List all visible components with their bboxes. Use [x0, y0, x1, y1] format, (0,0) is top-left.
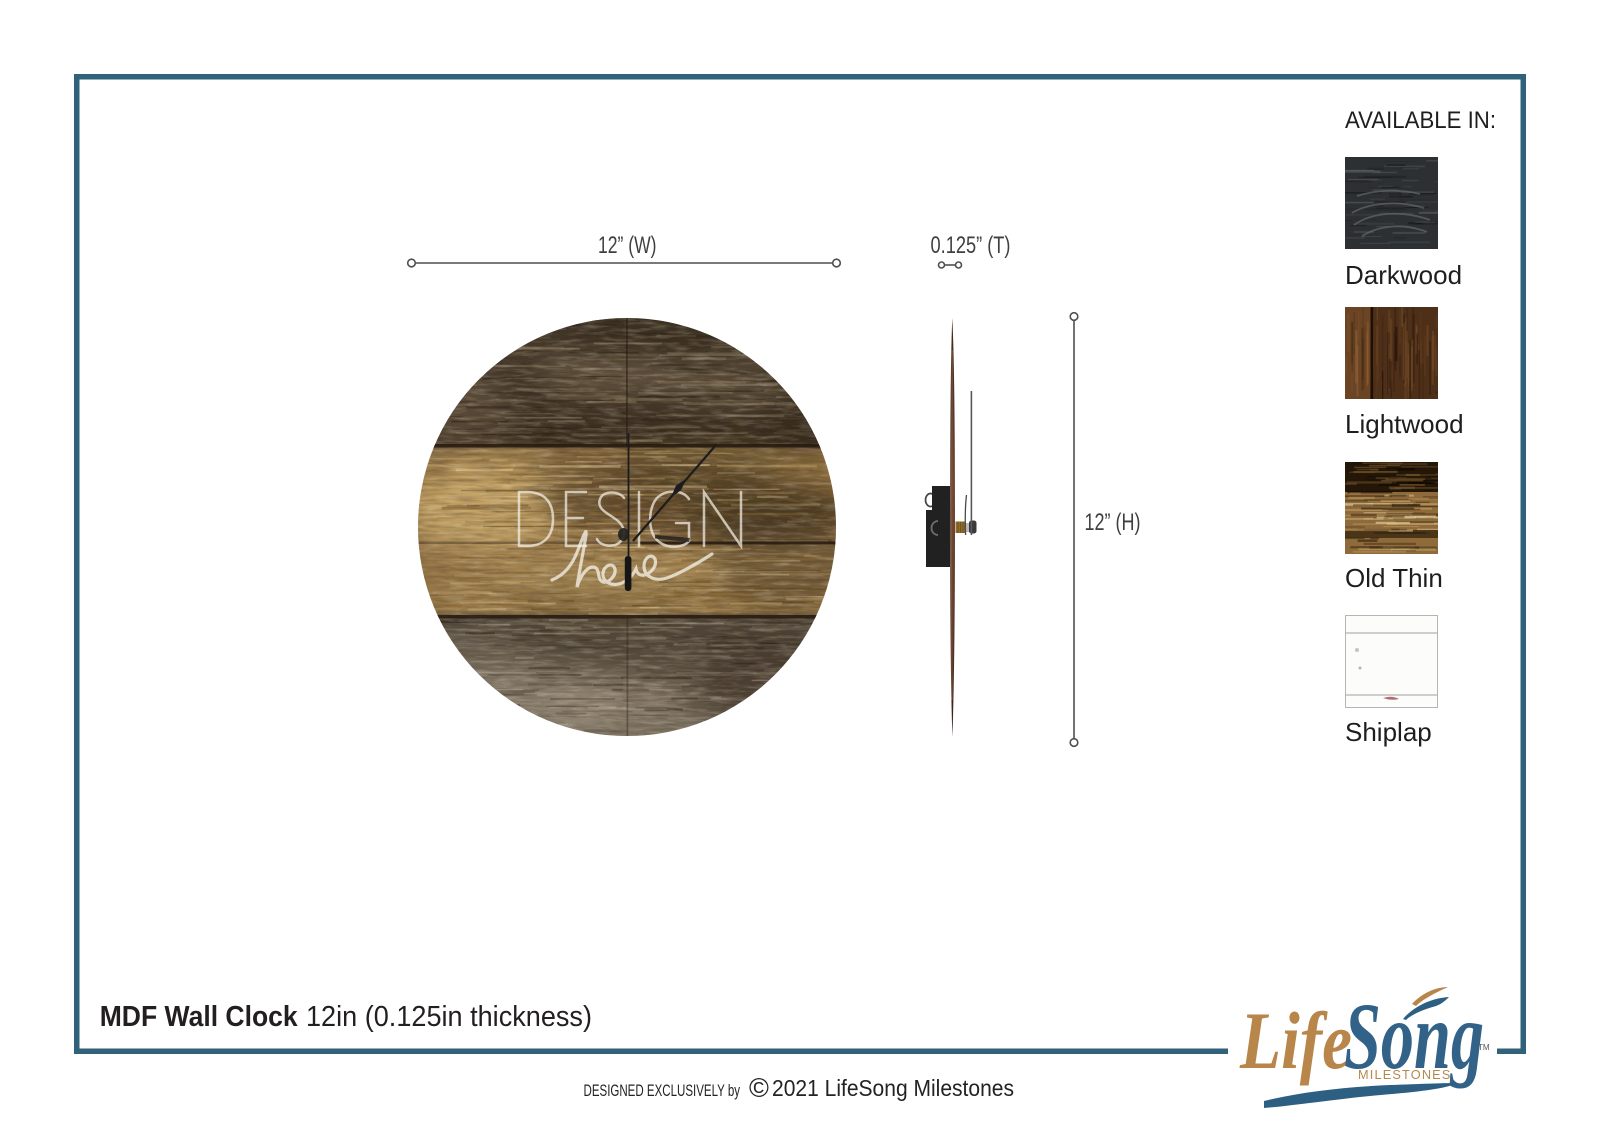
- svg-text:12” (H): 12” (H): [1085, 509, 1141, 536]
- svg-text:Shiplap: Shiplap: [1345, 717, 1432, 747]
- svg-text:Lightwood: Lightwood: [1345, 409, 1464, 439]
- svg-text:MDF Wall Clock: MDF Wall Clock: [100, 1001, 299, 1033]
- svg-text:Life: Life: [1239, 995, 1352, 1086]
- svg-text:AVAILABLE IN:: AVAILABLE IN:: [1345, 107, 1496, 134]
- svg-text:DESIGNED EXCLUSIVELY by: DESIGNED EXCLUSIVELY by: [584, 1081, 741, 1100]
- svg-text:12in (0.125in thickness): 12in (0.125in thickness): [306, 1001, 592, 1033]
- svg-text:©: ©: [749, 1073, 769, 1103]
- svg-text:2021 LifeSong Milestones: 2021 LifeSong Milestones: [772, 1075, 1014, 1101]
- svg-text:0.125” (T): 0.125” (T): [931, 232, 1011, 259]
- svg-text:Darkwood: Darkwood: [1345, 260, 1462, 290]
- svg-text:Old Thin: Old Thin: [1345, 563, 1443, 593]
- svg-text:MILESTONES: MILESTONES: [1358, 1067, 1452, 1082]
- svg-text:12” (W): 12” (W): [598, 232, 657, 259]
- svg-text:TM: TM: [1478, 1043, 1490, 1052]
